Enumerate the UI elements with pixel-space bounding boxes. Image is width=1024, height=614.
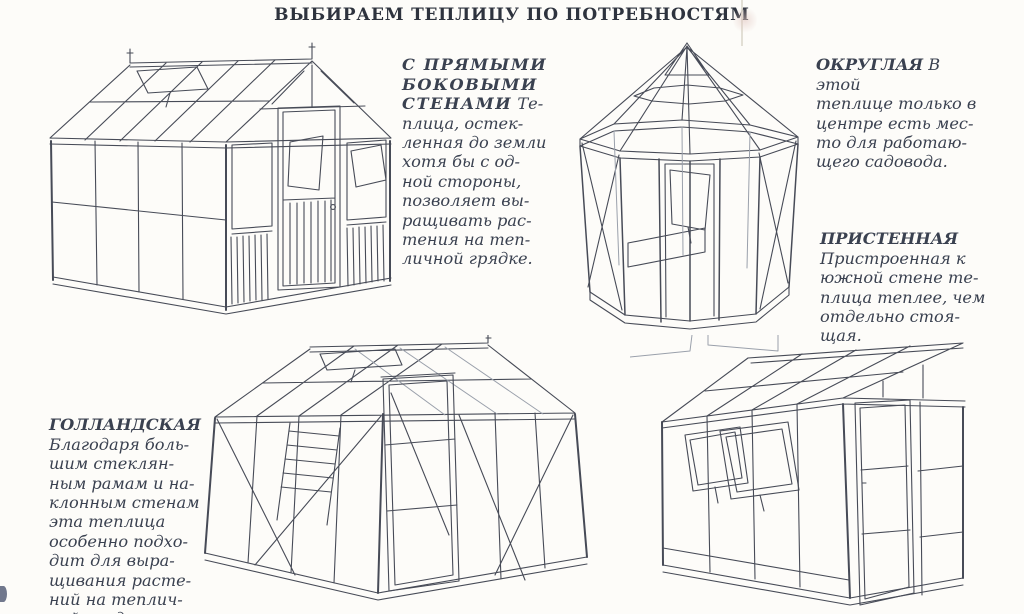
section-straight-walls-body: Те- плица, остек- ленная до земли хотя б… — [402, 94, 546, 268]
section-wall-body: Пристроенная к южной стене те- плица теп… — [820, 249, 985, 346]
corner-posts — [51, 141, 390, 310]
section-dutch: ГОЛЛАНДСКАЯ Благодаря боль- шим стеклян-… — [49, 396, 201, 614]
gable-glazing — [260, 65, 365, 109]
door — [628, 164, 714, 317]
side-wall-glazing — [52, 141, 226, 299]
interior-frame-lines — [614, 127, 750, 268]
sloped-roof — [662, 343, 965, 428]
roof-glazing — [85, 60, 275, 142]
scanned-book-page: ВЫБИРАЕМ ТЕПЛИЦУ ПО ПОТРЕБНОСТЯМ — [0, 0, 1024, 614]
house-wall — [630, 335, 778, 357]
lean-to-greenhouse-illustration — [630, 335, 1024, 614]
front-wall — [663, 404, 963, 605]
scan-edge-mark — [0, 586, 7, 602]
section-wall-heading: ПРИСТЕННАЯ — [820, 229, 958, 248]
sloped-walls — [205, 413, 587, 600]
sliding-door — [381, 373, 459, 591]
dutch-greenhouse-illustration — [195, 335, 625, 614]
door — [278, 106, 340, 290]
roof-frame — [215, 335, 575, 423]
diagonal-braces — [582, 141, 796, 310]
section-wall: ПРИСТЕННАЯ Пристроенная к южной стене те… — [820, 210, 1010, 346]
section-round-heading: ОКРУГЛАЯ — [816, 55, 923, 74]
section-round: ОКРУГЛАЯ В этой теплице только в центре … — [816, 36, 988, 172]
section-dutch-body: Благодаря боль- шим стеклян- ным рамам и… — [49, 435, 200, 614]
gable-greenhouse-illustration — [20, 30, 400, 320]
open-top-hung-windows — [685, 422, 799, 511]
page-title: ВЫБИРАЕМ ТЕПЛИЦУ ПО ПОТРЕБНОСТЯМ — [0, 5, 1024, 25]
cone-roof — [580, 43, 798, 154]
side-windows-and-clapboard — [231, 140, 386, 304]
section-dutch-heading: ГОЛЛАНДСКАЯ — [49, 415, 201, 434]
end-door — [855, 400, 963, 605]
octagonal-greenhouse-illustration — [562, 25, 812, 355]
section-straight-walls: С ПРЯМЫМИ БОКОВЫМИ СТЕНАМИ Те- плица, ос… — [402, 36, 556, 269]
louver-vent-ladder — [277, 423, 340, 525]
